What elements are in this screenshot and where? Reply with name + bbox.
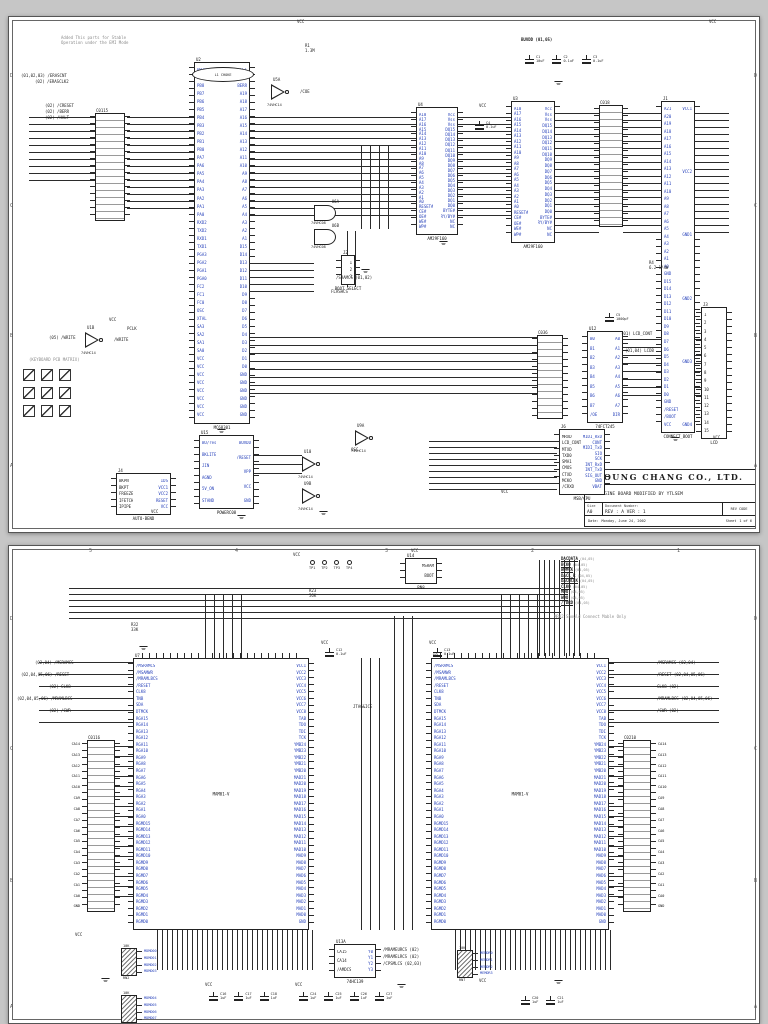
pin-label: WE# bbox=[514, 227, 521, 231]
pin-stubs-left bbox=[111, 478, 117, 510]
pin-label: NC bbox=[547, 227, 552, 231]
resistor-network-rn2: 10KRN2MDMD00MDMD01MDMD02MDMD03 bbox=[121, 948, 137, 976]
pin-label: D7 bbox=[242, 309, 247, 313]
pin-label: RGMD9 bbox=[434, 861, 446, 865]
pin-label: RGMD13 bbox=[136, 835, 150, 839]
pin-label: MAD13 bbox=[294, 828, 306, 832]
pin-label: A15 bbox=[664, 152, 671, 156]
pin-stubs-right bbox=[608, 663, 614, 925]
pin-label: MAD21 bbox=[594, 776, 606, 780]
inverter-bubble-icon bbox=[99, 338, 103, 342]
vcc-label: VCC bbox=[709, 19, 716, 24]
capacitor-group: C20 1uFC21 1uF bbox=[521, 996, 564, 1008]
gate-output-label: /WRITE bbox=[114, 337, 128, 342]
resistor-network-signals: MDMD04MDMD05MDMD06MDMD07 bbox=[144, 997, 157, 1021]
pin-label: MAD2 bbox=[296, 900, 306, 904]
schematic-label: Added This parts for Stable Operation un… bbox=[61, 35, 128, 45]
sheet-refs: (04,05) bbox=[580, 557, 595, 561]
resistor-network-rn3: 10KRN3MDMD04MDMD05MDMD06MDMD07 bbox=[121, 995, 137, 1023]
pin-label: VCC bbox=[197, 413, 204, 417]
pin-label: B3 bbox=[590, 366, 595, 370]
title-block-title: Title: PC1 ENGINE BOARD MODIFIED BY YTLS… bbox=[585, 485, 755, 503]
zone-label: C bbox=[754, 203, 757, 209]
pin-label: DQ2 bbox=[545, 199, 552, 203]
pin-label: RGA7 bbox=[136, 769, 146, 773]
pin-label: MAD14 bbox=[294, 822, 306, 826]
pin-label: CA5 bbox=[72, 840, 80, 844]
pin-label: PB7 bbox=[197, 92, 204, 96]
signal-label: WDO(04,05) bbox=[561, 595, 585, 600]
pin-label: GND bbox=[72, 905, 80, 909]
pin-label: MAD4 bbox=[296, 887, 306, 891]
zone-label: 4 bbox=[235, 548, 238, 554]
capacitor-symbol-icon bbox=[552, 55, 561, 67]
pin-label: MRXD bbox=[562, 435, 572, 439]
wire-bus bbox=[250, 263, 314, 298]
pin-label: PA1 bbox=[197, 205, 204, 209]
pin-label: BUVDD bbox=[239, 441, 251, 445]
capacitor-label: C20 1uF bbox=[532, 996, 538, 1004]
pin-label: VCC2 bbox=[158, 492, 168, 496]
pin-label: CONT bbox=[592, 441, 602, 445]
capacitor: C18 1uF bbox=[260, 992, 277, 1004]
pin-label: RGMD5 bbox=[136, 887, 148, 891]
pin-label: PB1 bbox=[197, 140, 204, 144]
sheet-value: 1 of 6 bbox=[739, 519, 752, 523]
pin-label: GND4 bbox=[682, 423, 692, 427]
connector-j4: BKPNBKPTFREEZEIFETCHIPIPEIDSVCC1VCC2RESE… bbox=[116, 473, 171, 515]
pin-label: RGA8 bbox=[136, 762, 146, 766]
pin-label: RESET bbox=[156, 499, 168, 503]
inverter-triangle-inner bbox=[272, 86, 283, 98]
pin-label: D8 bbox=[242, 301, 247, 305]
schematic-label: (01) LCD_CONT bbox=[621, 331, 652, 336]
pin-label: TAB bbox=[299, 717, 306, 721]
pin-label: 12 bbox=[704, 404, 709, 408]
schematic-label: R1 1.3M bbox=[305, 43, 315, 53]
pin-label: DQ8 bbox=[545, 164, 552, 168]
reference-designator: U10 bbox=[304, 449, 311, 454]
pin-labels-left: CA15CA14/AMDCS bbox=[337, 950, 351, 972]
pin-labels-left: B0B1B2B3B4B5B6B7/OE bbox=[590, 337, 597, 417]
schematic-sheet-2: 54321DDCCBBAA/MSRAMCS/MSAMWR/MRAMLBCS/RE… bbox=[8, 545, 760, 1024]
schematic-label: /CWR (02) bbox=[657, 708, 679, 713]
pin-stubs-right bbox=[554, 106, 560, 238]
pin-label: CLK8 bbox=[434, 690, 444, 694]
pin-label: D10 bbox=[664, 317, 671, 321]
vcc-label: VCC bbox=[293, 552, 300, 557]
resistor-network-signals: MDMD00MDMD01MDMD02MDMD03 bbox=[144, 950, 157, 974]
schematic-label: /MSRAMCS (02,04) bbox=[657, 660, 696, 665]
chip-u4: A18A17A16A15A14A13A12A11A10A9A8A7A6A5A4A… bbox=[416, 107, 458, 235]
pin-label: MAD6 bbox=[296, 874, 306, 878]
capacitor-group: C5 1000pF bbox=[605, 313, 629, 325]
capacitor: C13 0.1uF bbox=[433, 648, 455, 660]
ground-icon bbox=[554, 81, 563, 86]
pin-label: RGA0 bbox=[434, 815, 444, 819]
pin-label: D7 bbox=[664, 340, 669, 344]
rev-code-cell: REV CODE bbox=[723, 503, 755, 515]
pin-label: B0 bbox=[590, 337, 595, 341]
pin-label: D9 bbox=[664, 325, 669, 329]
pin-label: INT_TxD bbox=[585, 468, 602, 472]
pin-label: VCC3 bbox=[296, 677, 306, 681]
pin-stubs-right bbox=[604, 434, 610, 490]
pin-label: PB0 bbox=[197, 148, 204, 152]
pin-label: A12 bbox=[514, 140, 521, 144]
pin-label: VCC1 bbox=[296, 664, 306, 668]
wire-bus bbox=[394, 616, 421, 930]
capacitor: C12 0.1uF bbox=[325, 648, 347, 660]
capacitor-symbol-icon bbox=[234, 992, 243, 1004]
pin-label: A18 bbox=[664, 130, 671, 134]
pin-label: A0 bbox=[514, 205, 519, 209]
pin-label: GND bbox=[240, 397, 247, 401]
pin-label: A3 bbox=[514, 189, 519, 193]
pin-label: SA2 bbox=[197, 333, 204, 337]
zone-label: 3 bbox=[385, 548, 388, 554]
signal-label: MDMD07 bbox=[144, 1017, 157, 1021]
pin-labels-right: VccVssVssDQ15DQ14DQ13DQ12DQ11DQ10DQ9DQ8D… bbox=[441, 113, 455, 229]
pin-label: YMB20 bbox=[594, 769, 606, 773]
zone-label: C bbox=[754, 746, 757, 752]
gate-u9a: U9A74VHC14 bbox=[355, 429, 381, 449]
chip-u7: /MSRAMCS/MSAMWR/MRAMLBCS/RESETCLK8TNBSDA… bbox=[133, 658, 309, 930]
pin-label: VCC bbox=[197, 373, 204, 377]
pin-label: MAD2 bbox=[596, 900, 606, 904]
pin-label: CA1 bbox=[658, 884, 666, 888]
part-label: AM29F160 bbox=[427, 236, 446, 241]
capacitor-label: C18 1uF bbox=[271, 992, 277, 1000]
schematic-label: /MRAMELRCS (02) bbox=[383, 954, 419, 959]
vcc-label: VCC bbox=[501, 489, 508, 494]
drawing-title: PC1 ENGINE BOARD MODIFIED BY YTLSEM bbox=[588, 492, 752, 497]
resistor-network-signals: MEMDR0MEMDR1MEMDR2MEMDR3 bbox=[480, 952, 493, 976]
pin-label: RGA4 bbox=[434, 789, 444, 793]
part-label: 74VHC14 bbox=[298, 507, 313, 511]
part-label: 74VHC14 bbox=[298, 475, 313, 479]
pin-label: DQ3 bbox=[545, 193, 552, 197]
pin-label: MAD18 bbox=[594, 795, 606, 799]
schematic-label: OSC bbox=[351, 447, 358, 452]
pin-label: /RESET bbox=[136, 684, 150, 688]
pin-label: RGMD11 bbox=[434, 848, 448, 852]
pin-label: RGMD6 bbox=[434, 881, 446, 885]
pin-label: AGND bbox=[202, 476, 212, 480]
pin-label: MAD7 bbox=[296, 867, 306, 871]
capacitor-label: C21 1uF bbox=[557, 996, 563, 1004]
pin-label: D3 bbox=[664, 370, 669, 374]
pin-label: GND bbox=[595, 479, 602, 483]
title-block-bottom-row: Date: Monday, June 24, 2002 Sheet 1 of 6 bbox=[585, 516, 755, 526]
pin-label: CA2 bbox=[658, 873, 666, 877]
schematic-label: (05) /WRITE bbox=[49, 335, 76, 340]
pin-label: FREEZE bbox=[119, 492, 133, 496]
zone-label: C bbox=[10, 203, 13, 209]
capacitor-symbol-icon bbox=[582, 55, 591, 67]
signal-label: MEMDR0 bbox=[480, 952, 493, 956]
pin-label: 1 bbox=[704, 313, 706, 317]
pin-labels-left: 123456789101112131415 bbox=[704, 313, 709, 433]
pin-label: RGA12 bbox=[434, 736, 446, 740]
pin-label: DTMCK bbox=[136, 710, 148, 714]
pin-label: A1 bbox=[514, 200, 519, 204]
pin-label: A9 bbox=[242, 172, 247, 176]
pin-label: TDO bbox=[299, 723, 306, 727]
reference-designator: J1 bbox=[663, 96, 668, 101]
capacitor: C20 1uF bbox=[521, 996, 538, 1008]
pin-label: VCC bbox=[244, 485, 251, 489]
pin-label: RGA10 bbox=[434, 749, 446, 753]
pin-label: SDA bbox=[434, 703, 441, 707]
schematic-label: (02) CLK8 bbox=[49, 684, 71, 689]
pin-label: BOOT bbox=[424, 574, 434, 578]
capacitor-symbol-icon bbox=[521, 996, 530, 1008]
pin-label: B4 bbox=[590, 375, 595, 379]
ground-icon bbox=[439, 241, 448, 246]
pin-label: SA1 bbox=[197, 341, 204, 345]
pin-label: VCC6 bbox=[596, 697, 606, 701]
key-switch-icon bbox=[41, 405, 53, 417]
gate-u5a: U5A74VHC14/COE bbox=[271, 83, 297, 103]
pin-label: DQ10 bbox=[542, 153, 552, 157]
pin-stubs-left bbox=[696, 312, 702, 434]
pin-label: CE# bbox=[514, 216, 521, 220]
pin-label: DIR bbox=[613, 413, 620, 417]
pin-label: MAD12 bbox=[294, 835, 306, 839]
pin-label: MIDI_TxD bbox=[583, 446, 602, 450]
reference-designator: RN7 bbox=[459, 978, 465, 982]
pin-label: RGMD2 bbox=[136, 907, 148, 911]
pin-label: A3 bbox=[615, 366, 620, 370]
pin-label: YMB24 bbox=[594, 743, 606, 747]
capacitor-label: C1 10uF bbox=[536, 55, 544, 63]
capacitor-group: C24 1uFC25 1uFC26 1uFC27 1uF bbox=[299, 992, 392, 1004]
pin-label: CA4 bbox=[658, 851, 666, 855]
pin-label: RGA2 bbox=[136, 802, 146, 806]
test-point-label: TP1 bbox=[309, 566, 315, 570]
pin-labels-left: A18A17A16A15A14A13A12A11A10A9A8A7A6A5A4A… bbox=[514, 107, 528, 237]
pin-label: A3 bbox=[242, 221, 247, 225]
capacitor-label: C17 1uF bbox=[245, 992, 251, 1000]
pin-label: A10 bbox=[664, 190, 671, 194]
zone-label: C bbox=[10, 746, 13, 752]
pin-stubs-top bbox=[440, 653, 600, 659]
sheet-refs: (04,05) bbox=[577, 574, 592, 578]
pin-label: GND bbox=[244, 499, 251, 503]
sheet-refs: (04,05) bbox=[570, 590, 585, 594]
pin-label: LCD_CONT bbox=[562, 441, 581, 445]
pin-labels-right: MSRAMBOOT bbox=[422, 564, 434, 578]
pin-label: 5V_ON bbox=[202, 487, 214, 491]
pin-label: DQ4 bbox=[545, 187, 552, 191]
signal-label: MEMDR3 bbox=[480, 972, 493, 976]
inductor-choke: L1 CHOKE bbox=[192, 67, 254, 82]
pin-label: RGMD7 bbox=[434, 874, 446, 878]
pin-label: DQ11 bbox=[445, 149, 455, 153]
capacitor: C16 1uF bbox=[209, 992, 226, 1004]
cap-bank-c036: C036 bbox=[537, 335, 563, 419]
pin-label: RGA7 bbox=[434, 769, 444, 773]
pin-label: MAD15 bbox=[594, 815, 606, 819]
wire-bus bbox=[695, 113, 729, 239]
capacitor-symbol-icon bbox=[209, 992, 218, 1004]
test-point-icon bbox=[322, 560, 327, 565]
zone-label: A bbox=[10, 1004, 13, 1010]
pin-label: CA13 bbox=[658, 754, 666, 758]
pin-label: MAD19 bbox=[294, 789, 306, 793]
pin-label: GND3 bbox=[682, 360, 692, 364]
pin-label: VCC1 bbox=[158, 486, 168, 490]
pin-label: VCC8 bbox=[596, 710, 606, 714]
capacitor-group: C13 0.1uF bbox=[433, 648, 455, 660]
pin-label: D4 bbox=[664, 363, 669, 367]
key-switch-icon bbox=[59, 405, 71, 417]
cap-bank-c0115: C0115 bbox=[95, 113, 125, 221]
signal-label: WDMCK(04,05) bbox=[561, 567, 590, 572]
pin-label: D6 bbox=[664, 348, 669, 352]
pin-label: A14 bbox=[664, 160, 671, 164]
pin-label: D8 bbox=[664, 332, 669, 336]
zone-label: D bbox=[10, 73, 13, 79]
signal-label: /YDRD(04,05) bbox=[561, 600, 590, 605]
pin-stubs-left bbox=[582, 336, 588, 418]
pin-label: /CRXD bbox=[562, 485, 574, 489]
size-value: A0 bbox=[587, 510, 600, 515]
capacitor-symbol-icon bbox=[605, 313, 614, 325]
pin-label: A13 bbox=[240, 140, 247, 144]
pin-label: NC bbox=[450, 225, 455, 229]
pin-label: MAD10 bbox=[594, 848, 606, 852]
pin-label: RGA0 bbox=[136, 815, 146, 819]
wire-bus bbox=[29, 117, 95, 187]
pin-label: RGMD0 bbox=[434, 920, 446, 924]
pin-label: RGMD15 bbox=[434, 822, 448, 826]
pin-label: PGA3 bbox=[197, 253, 207, 257]
pin-label: DQ12 bbox=[542, 141, 552, 145]
capacitor-label: C2 0.1uF bbox=[563, 55, 574, 63]
pin-label: FC2 bbox=[197, 285, 204, 289]
bank-pin-labels: CA14CA13CA12CA11CA10CA9CA8CA7CA6CA5CA4CA… bbox=[658, 743, 666, 909]
reference-designator: J3 bbox=[703, 302, 708, 307]
pin-label: YMB20 bbox=[294, 769, 306, 773]
pin-label: TAB bbox=[599, 717, 606, 721]
reference-designator: U15 bbox=[201, 430, 208, 435]
pin-label: MAD19 bbox=[594, 789, 606, 793]
pin-label: A7 bbox=[242, 188, 247, 192]
pin-label: PB4 bbox=[197, 116, 204, 120]
pin-labels-right: VCC1VCC2VCC3VCC4VCC5VCC6VCC7VCC8TABTDOTD… bbox=[294, 664, 306, 924]
pin-label: Vss bbox=[545, 118, 552, 122]
pin-label: Vcc bbox=[545, 107, 552, 111]
chip-u14: MSRAMBOOTU14RN8 bbox=[405, 558, 437, 584]
pin-label: TXD0 bbox=[562, 454, 572, 458]
pin-label: 11 bbox=[704, 396, 709, 400]
pin-labels-right: VCC1VCC2GND1GND2GND3GND4 bbox=[682, 107, 692, 427]
pin-label: A14 bbox=[514, 129, 521, 133]
pin-label: D1 bbox=[242, 357, 247, 361]
pin-label: YMB23 bbox=[294, 749, 306, 753]
pin-label: VCC5 bbox=[296, 690, 306, 694]
pin-label: VCC7 bbox=[596, 703, 606, 707]
pin-label: PA3 bbox=[197, 188, 204, 192]
signal-label: DACDATA(04,05) bbox=[561, 556, 595, 561]
capacitor-group: C12 0.1uF bbox=[325, 648, 347, 660]
part-label: LCD bbox=[710, 440, 717, 445]
pin-label: MAD9 bbox=[596, 854, 606, 858]
pin-label: D0 bbox=[664, 393, 669, 397]
capacitor: C25 1uF bbox=[324, 992, 341, 1004]
pin-label: GND bbox=[240, 413, 247, 417]
pin-label: /MSAMWR bbox=[136, 671, 153, 675]
capacitor-label: C12 0.1uF bbox=[336, 648, 347, 656]
zone-label: A bbox=[754, 1004, 757, 1010]
pin-label: A18 bbox=[514, 107, 521, 111]
pin-label: MAD16 bbox=[294, 808, 306, 812]
pin-labels-left: MRXDLCD_CONTMTXDTXD0SMA1CMOSCTXDMCKO/CRX… bbox=[562, 435, 581, 489]
pin-labels-right: A0A1A2A3A4A5A6A7DIR bbox=[613, 337, 620, 417]
pin-label: OSC bbox=[197, 309, 204, 313]
pin-label: D15 bbox=[664, 280, 671, 284]
pin-label: Y0 bbox=[368, 950, 373, 954]
pin-label: CA3 bbox=[72, 862, 80, 866]
pin-labels-right: IDSVCC1VCC2RESETVCC bbox=[156, 479, 168, 509]
pin-label: CA6 bbox=[72, 830, 80, 834]
reference-designator: U9A bbox=[357, 423, 364, 428]
pin-label: VCC8 bbox=[296, 710, 306, 714]
pin-label: VCC2 bbox=[296, 671, 306, 675]
zone-label: B bbox=[754, 878, 757, 884]
pin-label: CA14 bbox=[72, 743, 80, 747]
pin-label: VCC4 bbox=[296, 684, 306, 688]
pin-label: 6 bbox=[704, 354, 706, 358]
pin-label: 7 bbox=[704, 363, 706, 367]
pin-label: MAD1 bbox=[296, 907, 306, 911]
pin-label: DQ7 bbox=[545, 170, 552, 174]
pin-label: STAND bbox=[202, 499, 214, 503]
pin-label: BKPN bbox=[119, 479, 129, 483]
pin-label: A9 bbox=[664, 197, 669, 201]
pin-label: RGA9 bbox=[434, 756, 444, 760]
pin-stubs-right bbox=[436, 563, 442, 579]
pin-label: MAD20 bbox=[294, 782, 306, 786]
pin-label: MAD14 bbox=[594, 822, 606, 826]
pin-label: RGMD1 bbox=[434, 913, 446, 917]
reference-designator: U6A bbox=[332, 199, 339, 204]
pin-label: DQ5 bbox=[545, 181, 552, 185]
capacitor-label: C13 0.1uF bbox=[444, 648, 455, 656]
pin-label: RGA3 bbox=[434, 795, 444, 799]
pin-label: A3 bbox=[664, 242, 669, 246]
pin-label: VCC2 bbox=[596, 671, 606, 675]
pin-label: /BOOT bbox=[664, 415, 676, 419]
reference-designator: U14 bbox=[407, 553, 414, 558]
pin-label: RGA6 bbox=[136, 776, 146, 780]
pin-label: VBAT bbox=[592, 485, 602, 489]
pin-label: PA7 bbox=[197, 156, 204, 160]
pin-stubs-left bbox=[128, 663, 134, 925]
zone-label: D bbox=[754, 616, 757, 622]
pin-label: MAD10 bbox=[294, 848, 306, 852]
ground-icon bbox=[217, 429, 226, 434]
pin-stubs-right bbox=[308, 663, 314, 925]
pin-label: TDI bbox=[299, 730, 306, 734]
pin-label: A17 bbox=[240, 108, 247, 112]
reference-designator: U6B bbox=[332, 223, 339, 228]
pin-label: VCC3 bbox=[596, 677, 606, 681]
company-name: YOUNG CHANG CO., LTD. bbox=[585, 470, 755, 485]
zone-label: A bbox=[754, 463, 757, 469]
